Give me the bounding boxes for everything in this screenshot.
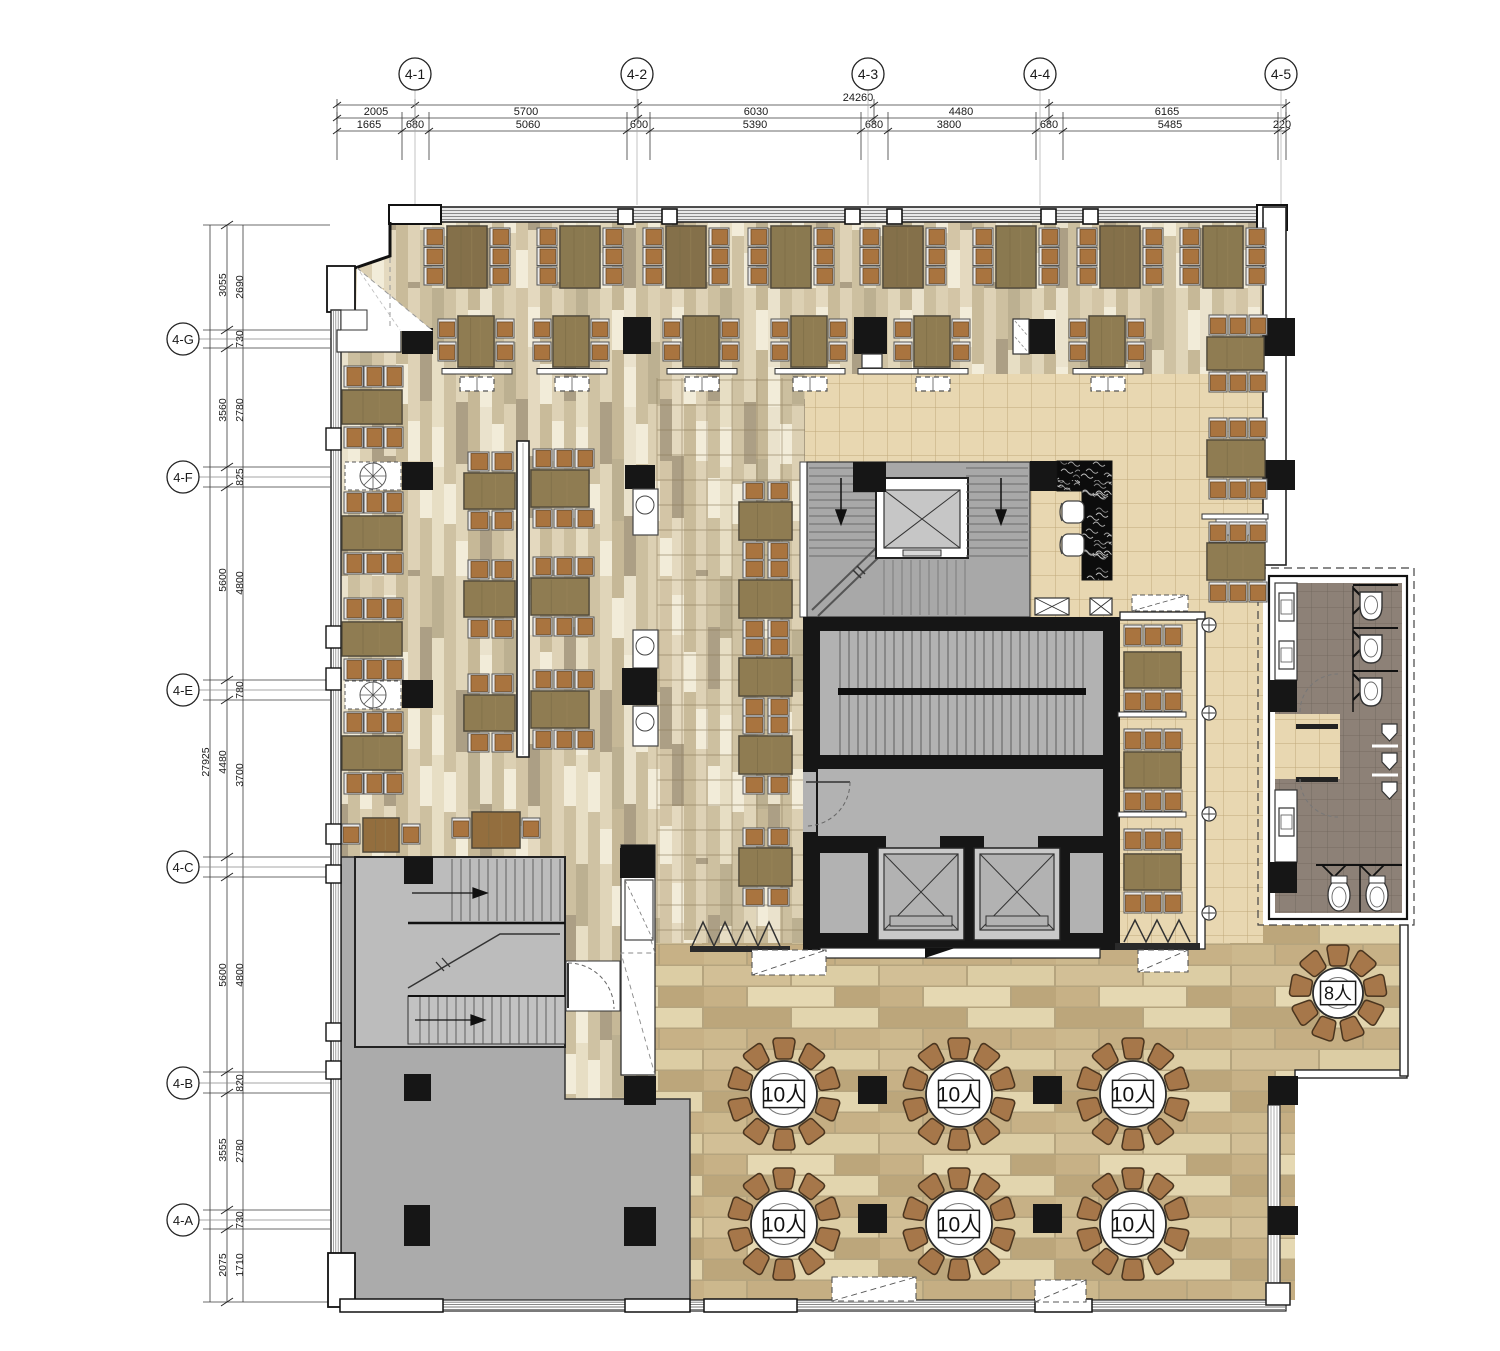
svg-text:27925: 27925	[200, 747, 212, 776]
svg-text:10人: 10人	[937, 1084, 981, 1107]
svg-text:2005: 2005	[364, 106, 388, 118]
svg-text:4-G: 4-G	[172, 332, 194, 347]
svg-text:2690: 2690	[234, 275, 246, 299]
svg-text:4-3: 4-3	[858, 66, 878, 82]
svg-text:1710: 1710	[234, 1253, 246, 1277]
svg-text:10人: 10人	[1111, 1084, 1155, 1107]
svg-text:5600: 5600	[217, 963, 229, 987]
svg-text:8人: 8人	[1324, 984, 1352, 1004]
svg-text:4-5: 4-5	[1271, 66, 1291, 82]
svg-text:6165: 6165	[1155, 106, 1179, 118]
svg-text:4-F: 4-F	[173, 470, 193, 485]
svg-text:5700: 5700	[514, 106, 538, 118]
svg-text:4-A: 4-A	[173, 1213, 194, 1228]
svg-text:5485: 5485	[1158, 119, 1182, 131]
svg-text:5060: 5060	[516, 119, 540, 131]
svg-text:3055: 3055	[217, 273, 229, 297]
svg-text:5600: 5600	[217, 568, 229, 592]
svg-text:4-2: 4-2	[627, 66, 647, 82]
svg-text:680: 680	[865, 119, 883, 131]
svg-text:4480: 4480	[217, 750, 229, 774]
svg-text:10人: 10人	[762, 1084, 806, 1107]
svg-text:24260: 24260	[843, 92, 874, 104]
svg-text:3800: 3800	[937, 119, 961, 131]
svg-text:220: 220	[1273, 119, 1291, 131]
svg-text:3555: 3555	[217, 1138, 229, 1162]
svg-text:4800: 4800	[234, 571, 246, 595]
svg-text:600: 600	[630, 119, 648, 131]
svg-text:2075: 2075	[217, 1253, 229, 1277]
svg-text:4-C: 4-C	[173, 860, 194, 875]
svg-text:6030: 6030	[744, 106, 768, 118]
svg-text:1665: 1665	[357, 119, 381, 131]
svg-text:10人: 10人	[762, 1214, 806, 1237]
svg-text:5390: 5390	[743, 119, 767, 131]
svg-text:2780: 2780	[234, 398, 246, 422]
svg-text:10人: 10人	[937, 1214, 981, 1237]
svg-text:2780: 2780	[234, 1139, 246, 1163]
svg-text:4-B: 4-B	[173, 1076, 193, 1091]
svg-text:4480: 4480	[949, 106, 973, 118]
svg-text:4-4: 4-4	[1030, 66, 1050, 82]
svg-text:3560: 3560	[217, 398, 229, 422]
svg-text:4-E: 4-E	[173, 683, 194, 698]
svg-text:10人: 10人	[1111, 1214, 1155, 1237]
svg-text:4800: 4800	[234, 963, 246, 987]
svg-text:680: 680	[1040, 119, 1058, 131]
svg-text:4-1: 4-1	[405, 66, 425, 82]
svg-text:3700: 3700	[234, 763, 246, 787]
